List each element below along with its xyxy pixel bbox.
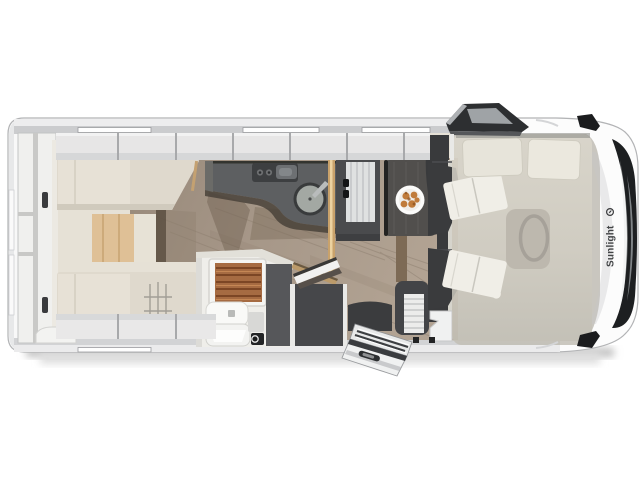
svg-text:Sunlight: Sunlight bbox=[606, 225, 617, 267]
